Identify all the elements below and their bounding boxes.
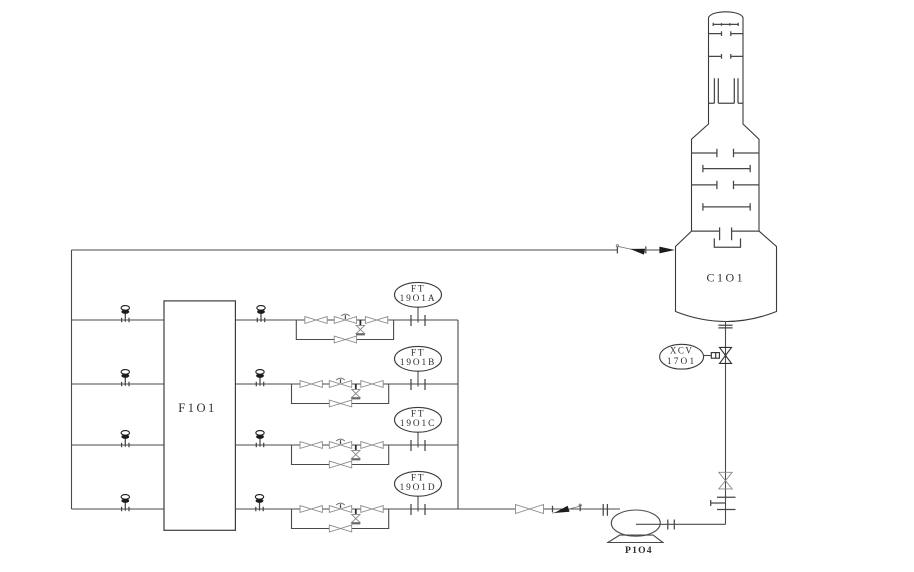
svg-text:17O1: 17O1 [667,357,696,367]
svg-text:FT: FT [411,473,425,483]
svg-text:19O1D: 19O1D [400,483,437,493]
svg-text:19O1A: 19O1A [400,294,437,304]
svg-text:P1O4: P1O4 [625,545,653,556]
svg-text:19O1B: 19O1B [400,358,436,368]
svg-text:XCV: XCV [670,346,694,356]
svg-text:F1O1: F1O1 [178,401,216,415]
svg-text:FT: FT [411,409,425,419]
svg-text:FT: FT [411,284,425,294]
svg-text:C1O1: C1O1 [706,271,745,285]
svg-text:FT: FT [411,348,425,358]
svg-text:19O1C: 19O1C [400,419,436,429]
